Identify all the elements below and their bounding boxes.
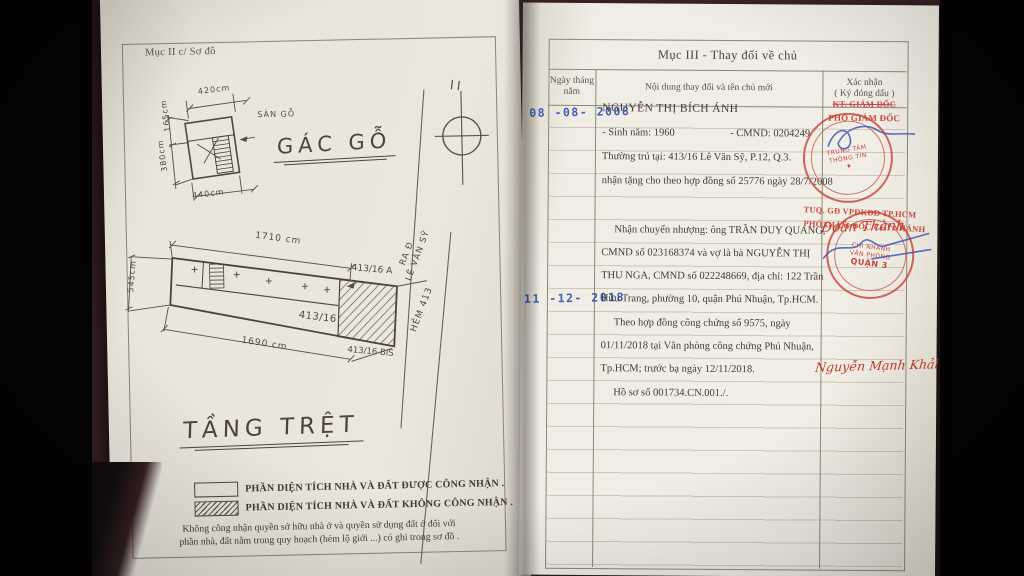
entry1-transfer-line: nhận tặng cho theo hợp đồng số 25776 ngà… [602,175,833,188]
entry2-line: Tp.HCM; trước bạ ngày 12/11/2018. [600,363,818,376]
entry2-line: Hồ sơ số 001734.CN.001./. [600,387,818,400]
entry2-line: THU NGA, CMND số 022248669, địa chỉ: 122… [601,270,819,283]
attic-material-note: SÀN GỖ [257,109,295,120]
entry2-line: CMND số 023168374 và vợ là bà NGUYỄN THỊ [601,247,819,260]
attic-dimension-lines [165,93,258,201]
north-compass [434,90,490,185]
attic-outline [185,117,240,179]
column-header-date: Ngày tháng năm [548,69,595,105]
certificate-right-page: Mục III - Thay đổi về chủ Ngày tháng năm… [519,3,939,576]
entry1-approval-title1: KT. GIÁM ĐỐC [824,99,904,110]
entry2-line: 01/11/2018 tại Văn phòng công chứng Phú … [601,340,819,353]
entry2-signer-name: Nguyễn Mạnh Khải [814,356,939,374]
entry1-id-number: - CMND: 0204249 [730,128,810,140]
column-header-content: Nội dung thay đổi và tên chủ mới [595,69,822,107]
entry2-line: Theo hợp đồng công chứng số 9575, ngày [601,317,819,330]
entry2-line: Nhận chuyển nhượng: ông TRẦN DUY QUANG, [601,224,819,237]
entry2-line: Hữu Trang, phường 10, quận Phú Nhuận, Tp… [601,293,819,306]
photo-of-land-certificate: Mục II c/ Sơ đồ [0,0,1024,576]
legend-hatched-swatch [194,501,238,517]
legend-plain-swatch [194,482,238,498]
entry1-birth-id-line: - Sinh năm: 1960 - CMND: 0204249 [602,127,810,139]
entry1-signature [820,113,920,162]
compass-roman-numeral: II [449,78,464,95]
entry1-address-line: Thường trú tại: 413/16 Lê Văn Sỹ, P.12, … [602,151,791,163]
section-iii-title: Mục III - Thay đổi về chủ [549,39,907,71]
certificate-left-page: Mục II c/ Sơ đồ [100,0,531,576]
page-corner-shadow [92,462,162,576]
entry1-owner-name: NGUYỄN THỊ BÍCH ÁNH [602,102,738,115]
entry1-birth-year: - Sinh năm: 1960 [602,127,675,139]
entry2-signature [817,221,935,274]
